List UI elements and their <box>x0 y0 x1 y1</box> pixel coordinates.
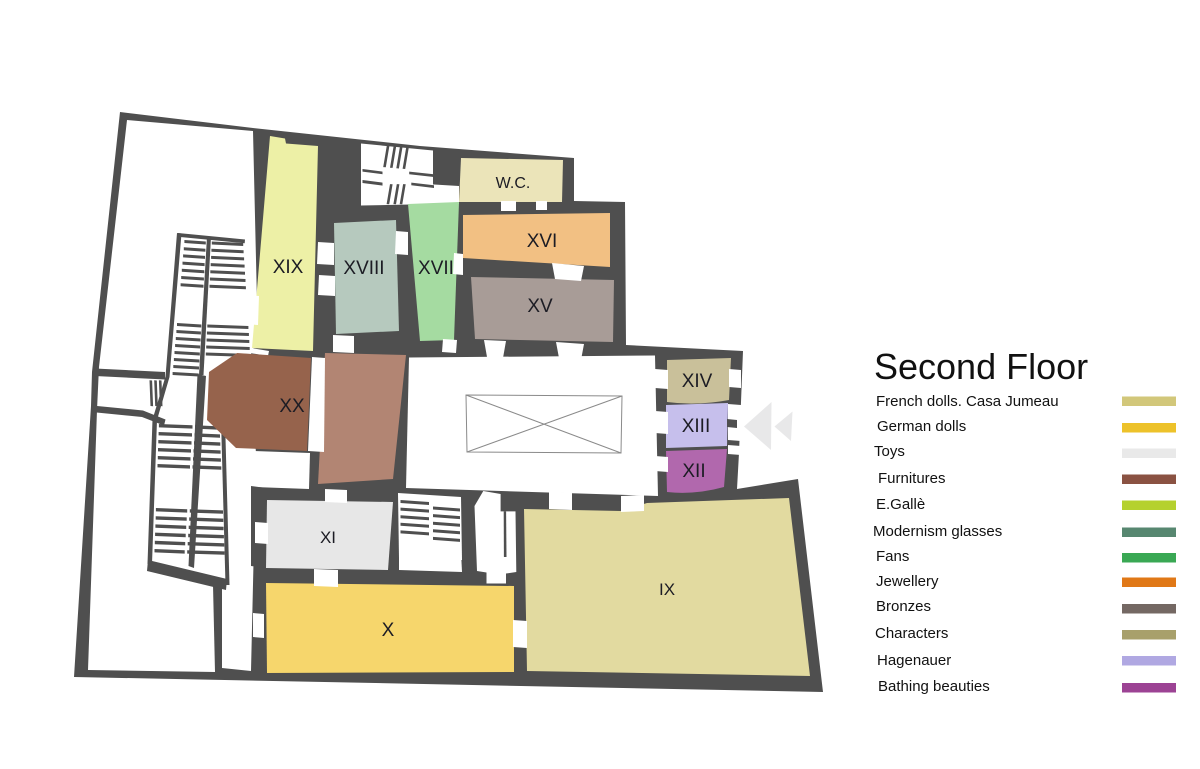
svg-text:Second Floor: Second Floor <box>874 346 1088 387</box>
svg-text:XV: XV <box>527 296 553 317</box>
svg-text:IX: IX <box>659 580 675 599</box>
svg-text:Characters: Characters <box>875 625 948 642</box>
svg-text:XVII: XVII <box>418 258 454 279</box>
svg-text:XX: XX <box>279 396 305 417</box>
svg-text:Modernism glasses: Modernism glasses <box>873 523 1002 540</box>
svg-text:XIX: XIX <box>273 257 304 278</box>
svg-text:W.C.: W.C. <box>496 175 531 192</box>
svg-text:XII: XII <box>682 461 705 482</box>
svg-text:Furnitures: Furnitures <box>878 470 946 487</box>
svg-text:Hagenauer: Hagenauer <box>877 652 951 669</box>
svg-text:E.Gallè: E.Gallè <box>876 496 925 513</box>
svg-text:XIII: XIII <box>682 416 711 437</box>
svg-text:XVIII: XVIII <box>343 258 384 279</box>
svg-text:German dolls: German dolls <box>877 418 966 435</box>
svg-text:XI: XI <box>320 528 336 547</box>
svg-text:XIV: XIV <box>682 371 713 392</box>
svg-text:Fans: Fans <box>876 548 909 565</box>
svg-text:Bronzes: Bronzes <box>876 598 931 615</box>
svg-text:Jewellery: Jewellery <box>876 573 939 590</box>
svg-text:Bathing beauties: Bathing beauties <box>878 678 990 695</box>
svg-text:X: X <box>382 620 395 641</box>
svg-text:Toys: Toys <box>874 443 905 460</box>
svg-text:French dolls. Casa Jumeau: French dolls. Casa Jumeau <box>876 393 1059 410</box>
svg-text:XVI: XVI <box>527 231 558 252</box>
